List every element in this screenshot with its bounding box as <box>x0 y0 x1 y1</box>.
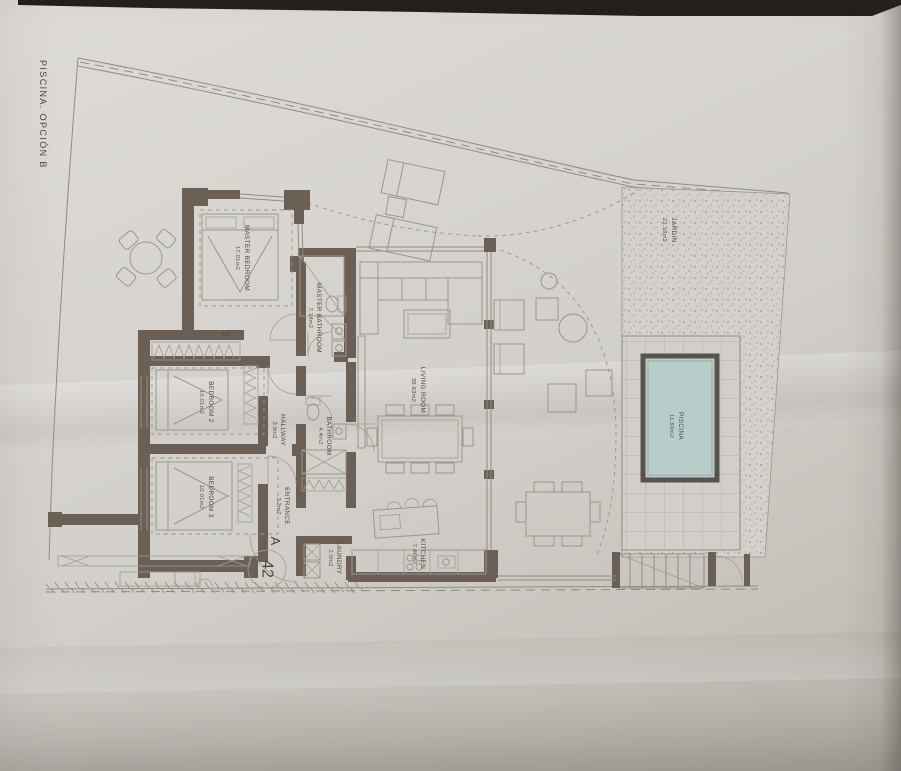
laundry-machines <box>304 544 320 578</box>
dining-table-indoor <box>367 405 473 473</box>
top-edge-shadow <box>18 0 901 16</box>
bathroom-area: 4.4m2 <box>317 427 323 444</box>
master-bathroom-fixtures <box>300 256 346 356</box>
stairs <box>618 554 704 588</box>
wardrobes <box>152 342 346 522</box>
outdoor-table-round <box>115 228 177 288</box>
bathroom-fixtures <box>302 398 346 474</box>
kitchen-island <box>373 497 439 538</box>
bathroom-label: BATHROOM <box>325 416 332 455</box>
unit-number: 42 <box>259 560 276 578</box>
entrance-letter: A <box>268 537 283 546</box>
boundary-hatch <box>46 582 362 593</box>
kitchen-counter <box>352 550 486 574</box>
sun-loungers <box>369 160 445 261</box>
living-room-area: 38.63m2 <box>410 378 416 402</box>
jardin-area: 22.18m2 <box>661 218 667 242</box>
living-room-label: LIVING ROOM <box>419 367 426 413</box>
photo-right-shadow <box>881 0 901 771</box>
outdoor-dining-table <box>516 482 600 546</box>
pool-area: PISCINA 11.69m2 <box>622 336 740 550</box>
terrace-lounge-set <box>494 273 612 412</box>
master-bathroom-area: 7.14m2 <box>307 308 313 329</box>
tv-bench <box>358 336 365 448</box>
kitchen-area: 7.46m2 <box>411 544 417 565</box>
piscina-area: 11.69m2 <box>668 414 674 438</box>
bedroom-2-label: BEDROOM 2 <box>207 381 214 422</box>
ac-label: A/C <box>221 332 232 338</box>
hallway-label: HALLWAY <box>279 414 286 446</box>
kitchen-label: KITCHEN <box>419 539 426 569</box>
floor-plan-drawing: PISCINA. OPCIÓN B JARDIN 22.18m2 PISCINA… <box>0 0 901 771</box>
bedroom-3-label: BEDROOM 3 <box>207 476 214 517</box>
piscina-label: PISCINA <box>677 412 684 440</box>
sofa <box>360 262 482 338</box>
laundry-label: LAUNDRY <box>335 542 342 575</box>
jardin-label: JARDIN <box>670 217 677 242</box>
entrance-label: ENTRANCE <box>283 487 290 525</box>
floor-plan-photo: PISCINA. OPCIÓN B JARDIN 22.18m2 PISCINA… <box>0 0 901 771</box>
master-bedroom-label: MASTER BEDROOM <box>243 225 250 291</box>
master-bedroom-area: 17.01m2 <box>234 246 240 270</box>
bedroom-2-area: 10.01m2 <box>198 390 204 414</box>
bedroom-3-area: 10.01m2 <box>198 485 204 509</box>
entrance-area: 3.3m2 <box>275 497 281 514</box>
laundry-area: 2.9m2 <box>327 549 333 566</box>
master-bathroom-label: MASTER BATHROOM <box>315 283 322 353</box>
hallway-area: 3.9m2 <box>271 421 277 438</box>
side-label: PISCINA. OPCIÓN B <box>38 60 48 169</box>
